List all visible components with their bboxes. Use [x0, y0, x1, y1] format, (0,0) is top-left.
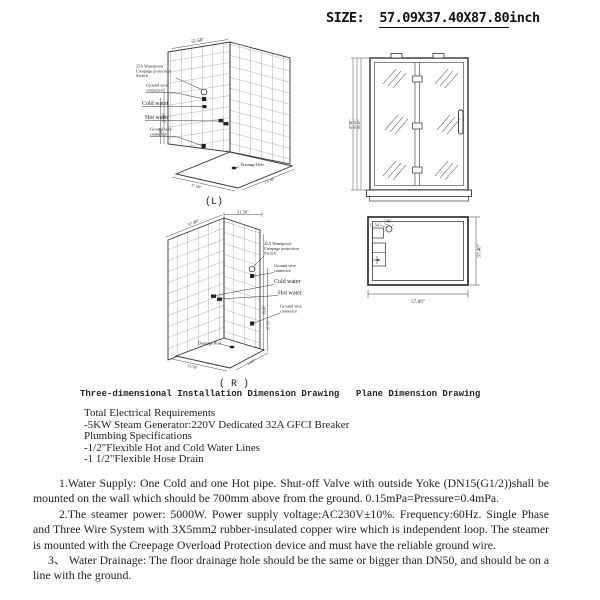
- dim-floor-left: 17.60": [191, 182, 203, 189]
- three-d-drawing-caption: Three-dimensional Installation Dimension…: [80, 389, 339, 399]
- switch-label-line3: Switch: [136, 73, 149, 78]
- ground-wire-label-line2: connector: [274, 268, 292, 273]
- tiled-corner-walls: [168, 218, 260, 360]
- requirements-list: Total Electrical Requirements -5KW Steam…: [84, 408, 349, 466]
- installation-notes: 1.Water Supply: One Cold and one Hot pip…: [33, 476, 549, 584]
- tiled-corner-walls: [168, 42, 290, 164]
- hot-water-label: Hot water: [278, 291, 302, 297]
- drainage-hole-label: Drainage Hole: [241, 162, 265, 167]
- cabin-outline: [368, 217, 468, 285]
- dim-side-a: 27.55": [163, 113, 167, 124]
- height-dimension-texts: 87.80" 85.43" 81.10": [349, 119, 361, 129]
- dim-floor-right: 13.78": [264, 176, 276, 185]
- size-unit: inch: [509, 10, 540, 26]
- cold-water-label: Cold water: [274, 279, 301, 285]
- hinge-bottom: [413, 167, 423, 173]
- dim-height-c: 81.10": [357, 119, 361, 129]
- dim-offset-b: 7.66": [384, 220, 392, 224]
- three-d-view-left: 25A Waterproof Creepage protection Switc…: [118, 36, 318, 208]
- shower-tray-base: [367, 190, 472, 201]
- front-elevation-view: 87.80" 85.43" 81.10": [345, 40, 525, 210]
- note-steamer-power: 2.The steamer power: 5000W. Power supply…: [33, 507, 549, 553]
- dim-side-b: 7.87": [159, 127, 163, 136]
- cold-water-mark: [212, 295, 216, 297]
- drain-hole-mark: [232, 167, 237, 170]
- three-d-view-right: 25A Waterproof Creepage protection Switc…: [156, 210, 336, 392]
- dim-wall-width: 37.40": [187, 218, 200, 227]
- cold-water-label: Cold water: [142, 101, 169, 107]
- dim-width: 57.09": [411, 299, 425, 305]
- ground-connector-mark: [203, 98, 206, 101]
- electrical-requirements-title: Total Electrical Requirements: [84, 408, 349, 420]
- left-view-caption: (L): [205, 196, 223, 208]
- dim-floor-left: 13.78": [187, 363, 199, 370]
- hot-water-mark: [219, 120, 223, 122]
- dim-side-a: 39.06": [263, 305, 267, 316]
- dim-top: 51.60": [191, 38, 205, 45]
- size-value: 57.09X37.40X87.80: [379, 10, 509, 28]
- hinge-middle: [413, 123, 423, 129]
- dim-top: 31.50": [237, 210, 249, 215]
- door-handle: [459, 110, 464, 134]
- hinge-top: [413, 76, 423, 82]
- drainage-hole-label: Drainage Hole: [198, 341, 222, 346]
- top-bracket-left: [391, 54, 402, 59]
- ground-wire2-label-line2: connector: [280, 308, 298, 313]
- plane-view: 11.54" 7.66" 57.09" 37.40": [356, 212, 526, 320]
- document-page: SIZE: 57.09X37.40X87.80inch: [0, 0, 600, 600]
- plumbing-item-hose-drain: -1 1/2"Flexible Hose Drain: [84, 454, 349, 466]
- note-water-drainage: 3、 Water Drainage: The floor drainage ho…: [33, 553, 549, 584]
- drain-hole-mark: [230, 346, 235, 349]
- dim-offset-a: 11.54": [370, 223, 381, 228]
- hot-water-mark-2: [224, 123, 228, 125]
- switch-mark: [249, 266, 255, 272]
- switch-mark: [201, 89, 207, 95]
- size-label: SIZE:: [326, 10, 364, 26]
- plane-drawing-caption: Plane Dimension Drawing: [356, 389, 480, 399]
- switch-label-line3: Switch: [264, 251, 277, 256]
- dim-side-b: 27.55": [267, 320, 271, 331]
- note-water-supply: 1.Water Supply: One Cold and one Hot pip…: [33, 476, 549, 507]
- ground-wire-label-line2: connector: [146, 87, 164, 92]
- top-bracket-right: [433, 54, 444, 59]
- dim-depth: 37.40": [478, 244, 483, 257]
- ground-connector-mark-2: [202, 145, 205, 148]
- size-header: SIZE: 57.09X37.40X87.80inch: [326, 10, 540, 26]
